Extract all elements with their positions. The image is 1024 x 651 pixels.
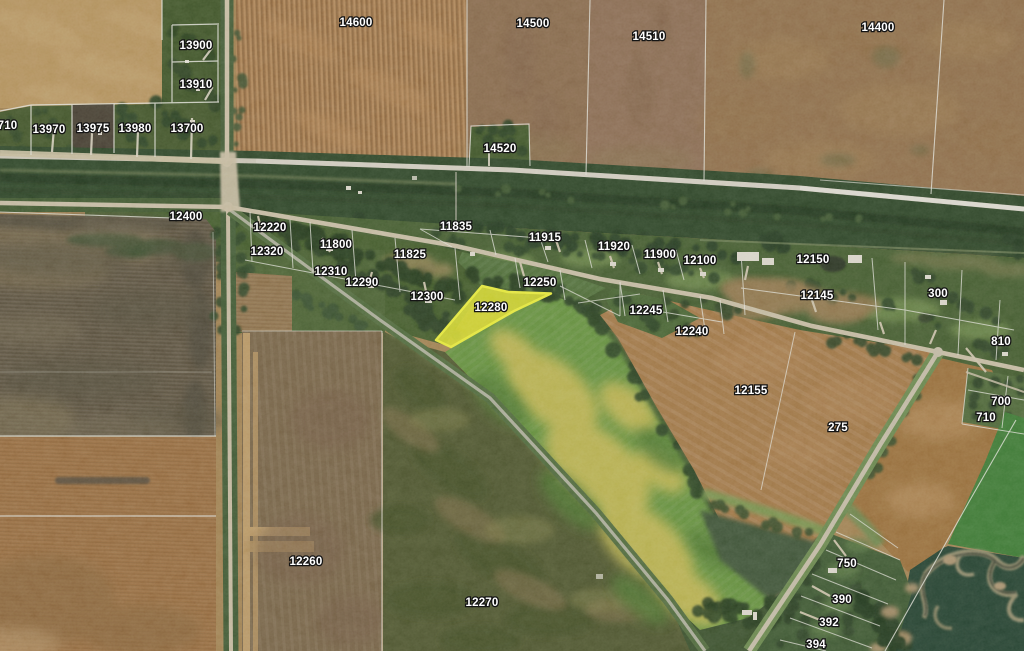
svg-text:394: 394 <box>806 639 826 651</box>
svg-text:13970: 13970 <box>33 124 66 136</box>
svg-text:275: 275 <box>828 422 848 434</box>
svg-text:14500: 14500 <box>517 18 550 30</box>
svg-text:12100: 12100 <box>684 255 717 267</box>
svg-text:13975: 13975 <box>77 123 110 135</box>
svg-text:13910: 13910 <box>180 79 213 91</box>
svg-text:12245: 12245 <box>630 305 663 317</box>
svg-text:300: 300 <box>928 288 948 300</box>
svg-text:750: 750 <box>837 558 857 570</box>
svg-text:14400: 14400 <box>862 22 895 34</box>
svg-text:11835: 11835 <box>440 221 473 233</box>
svg-text:12145: 12145 <box>801 290 834 302</box>
svg-text:11825: 11825 <box>394 249 427 261</box>
svg-text:12155: 12155 <box>735 385 768 397</box>
svg-text:13700: 13700 <box>171 123 204 135</box>
svg-text:12300: 12300 <box>411 291 444 303</box>
svg-text:14600: 14600 <box>340 17 373 29</box>
svg-text:12310: 12310 <box>315 266 348 278</box>
svg-text:13900: 13900 <box>180 40 213 52</box>
svg-text:12220: 12220 <box>254 222 287 234</box>
svg-text:710: 710 <box>976 412 996 424</box>
svg-text:12400: 12400 <box>170 211 203 223</box>
svg-text:12270: 12270 <box>466 597 499 609</box>
svg-text:3710: 3710 <box>0 120 17 132</box>
svg-text:13980: 13980 <box>119 123 152 135</box>
svg-text:700: 700 <box>991 396 1011 408</box>
svg-text:11920: 11920 <box>598 241 630 253</box>
svg-text:12280: 12280 <box>475 302 508 314</box>
svg-text:12290: 12290 <box>346 277 379 289</box>
svg-text:392: 392 <box>819 617 839 629</box>
svg-text:11900: 11900 <box>644 249 676 261</box>
svg-text:11800: 11800 <box>320 239 352 251</box>
svg-text:14510: 14510 <box>633 31 666 43</box>
svg-text:12320: 12320 <box>251 246 284 258</box>
svg-text:12260: 12260 <box>290 556 323 568</box>
svg-text:810: 810 <box>991 336 1011 348</box>
svg-text:12150: 12150 <box>797 254 830 266</box>
svg-text:14520: 14520 <box>484 143 517 155</box>
svg-text:390: 390 <box>832 594 852 606</box>
svg-text:12250: 12250 <box>524 277 557 289</box>
svg-text:12240: 12240 <box>676 326 709 338</box>
svg-text:11915: 11915 <box>529 232 562 244</box>
